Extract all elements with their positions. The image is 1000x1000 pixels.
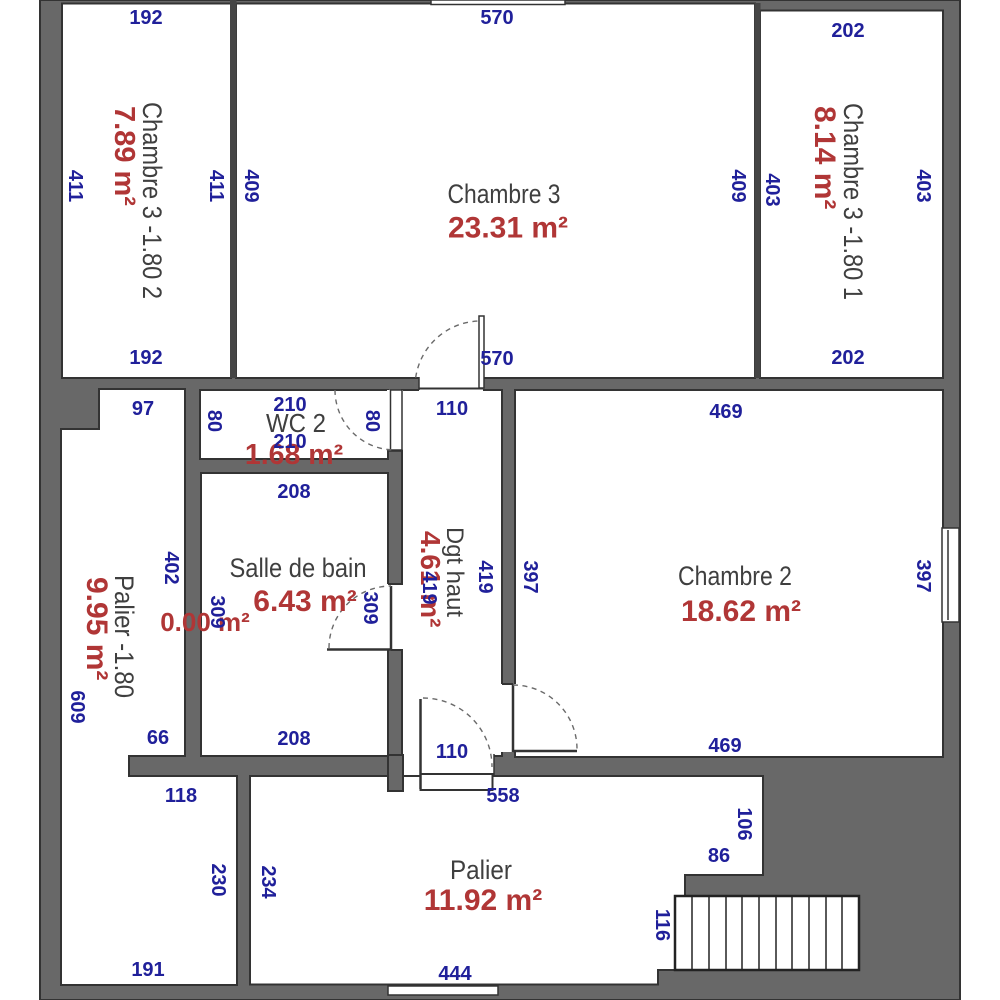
svg-text:8.14 m²: 8.14 m² (808, 106, 841, 209)
svg-text:202: 202 (831, 347, 864, 369)
svg-text:469: 469 (709, 401, 742, 423)
svg-text:409: 409 (727, 169, 749, 202)
svg-text:230: 230 (207, 863, 229, 896)
svg-text:419: 419 (418, 571, 440, 604)
svg-text:23.31 m²: 23.31 m² (448, 212, 568, 245)
svg-text:Salle de bain: Salle de bain (230, 553, 367, 583)
svg-text:309: 309 (359, 591, 381, 624)
svg-text:7.89 m²: 7.89 m² (108, 106, 140, 206)
svg-text:208: 208 (277, 481, 310, 503)
svg-text:403: 403 (912, 169, 934, 202)
svg-text:570: 570 (480, 348, 513, 370)
svg-text:444: 444 (438, 963, 472, 985)
svg-text:192: 192 (129, 347, 162, 369)
svg-text:202: 202 (831, 20, 864, 42)
svg-text:411: 411 (64, 170, 86, 202)
svg-text:210: 210 (273, 394, 306, 416)
svg-text:469: 469 (708, 735, 741, 757)
svg-text:397: 397 (912, 559, 934, 592)
svg-text:Chambre 3: Chambre 3 (448, 179, 561, 209)
svg-text:110: 110 (436, 741, 468, 763)
svg-text:570: 570 (480, 7, 513, 29)
svg-text:18.62 m²: 18.62 m² (681, 595, 801, 628)
svg-text:234: 234 (257, 865, 279, 899)
svg-text:191: 191 (131, 959, 164, 981)
svg-text:Chambre 2: Chambre 2 (678, 561, 792, 591)
svg-text:409: 409 (240, 169, 262, 202)
svg-text:397: 397 (519, 560, 541, 593)
svg-text:118: 118 (165, 785, 197, 807)
svg-text:Chambre 3 -1.80 1: Chambre 3 -1.80 1 (838, 103, 868, 300)
svg-text:97: 97 (132, 398, 154, 420)
svg-text:116: 116 (651, 909, 673, 941)
svg-text:86: 86 (708, 845, 730, 867)
svg-text:106: 106 (733, 807, 755, 840)
svg-text:558: 558 (486, 785, 519, 807)
svg-text:411: 411 (205, 170, 227, 202)
svg-text:Chambre 3 -1.80 2: Chambre 3 -1.80 2 (137, 102, 167, 299)
svg-text:110: 110 (436, 398, 468, 420)
svg-text:208: 208 (277, 728, 310, 750)
svg-text:402: 402 (160, 551, 182, 584)
svg-text:210: 210 (273, 431, 306, 453)
svg-text:419: 419 (474, 560, 496, 593)
svg-text:80: 80 (361, 410, 383, 432)
svg-text:192: 192 (129, 7, 162, 29)
svg-text:309: 309 (206, 595, 228, 628)
svg-text:Palier: Palier (450, 855, 512, 885)
svg-text:0.00 m²: 0.00 m² (160, 607, 250, 637)
svg-text:6.43 m²: 6.43 m² (253, 585, 356, 618)
svg-text:609: 609 (66, 690, 88, 723)
svg-text:66: 66 (147, 727, 169, 749)
svg-text:11.92 m²: 11.92 m² (424, 884, 542, 917)
svg-text:403: 403 (761, 173, 783, 206)
svg-text:80: 80 (203, 410, 225, 432)
svg-text:9.95 m²: 9.95 m² (80, 577, 113, 680)
